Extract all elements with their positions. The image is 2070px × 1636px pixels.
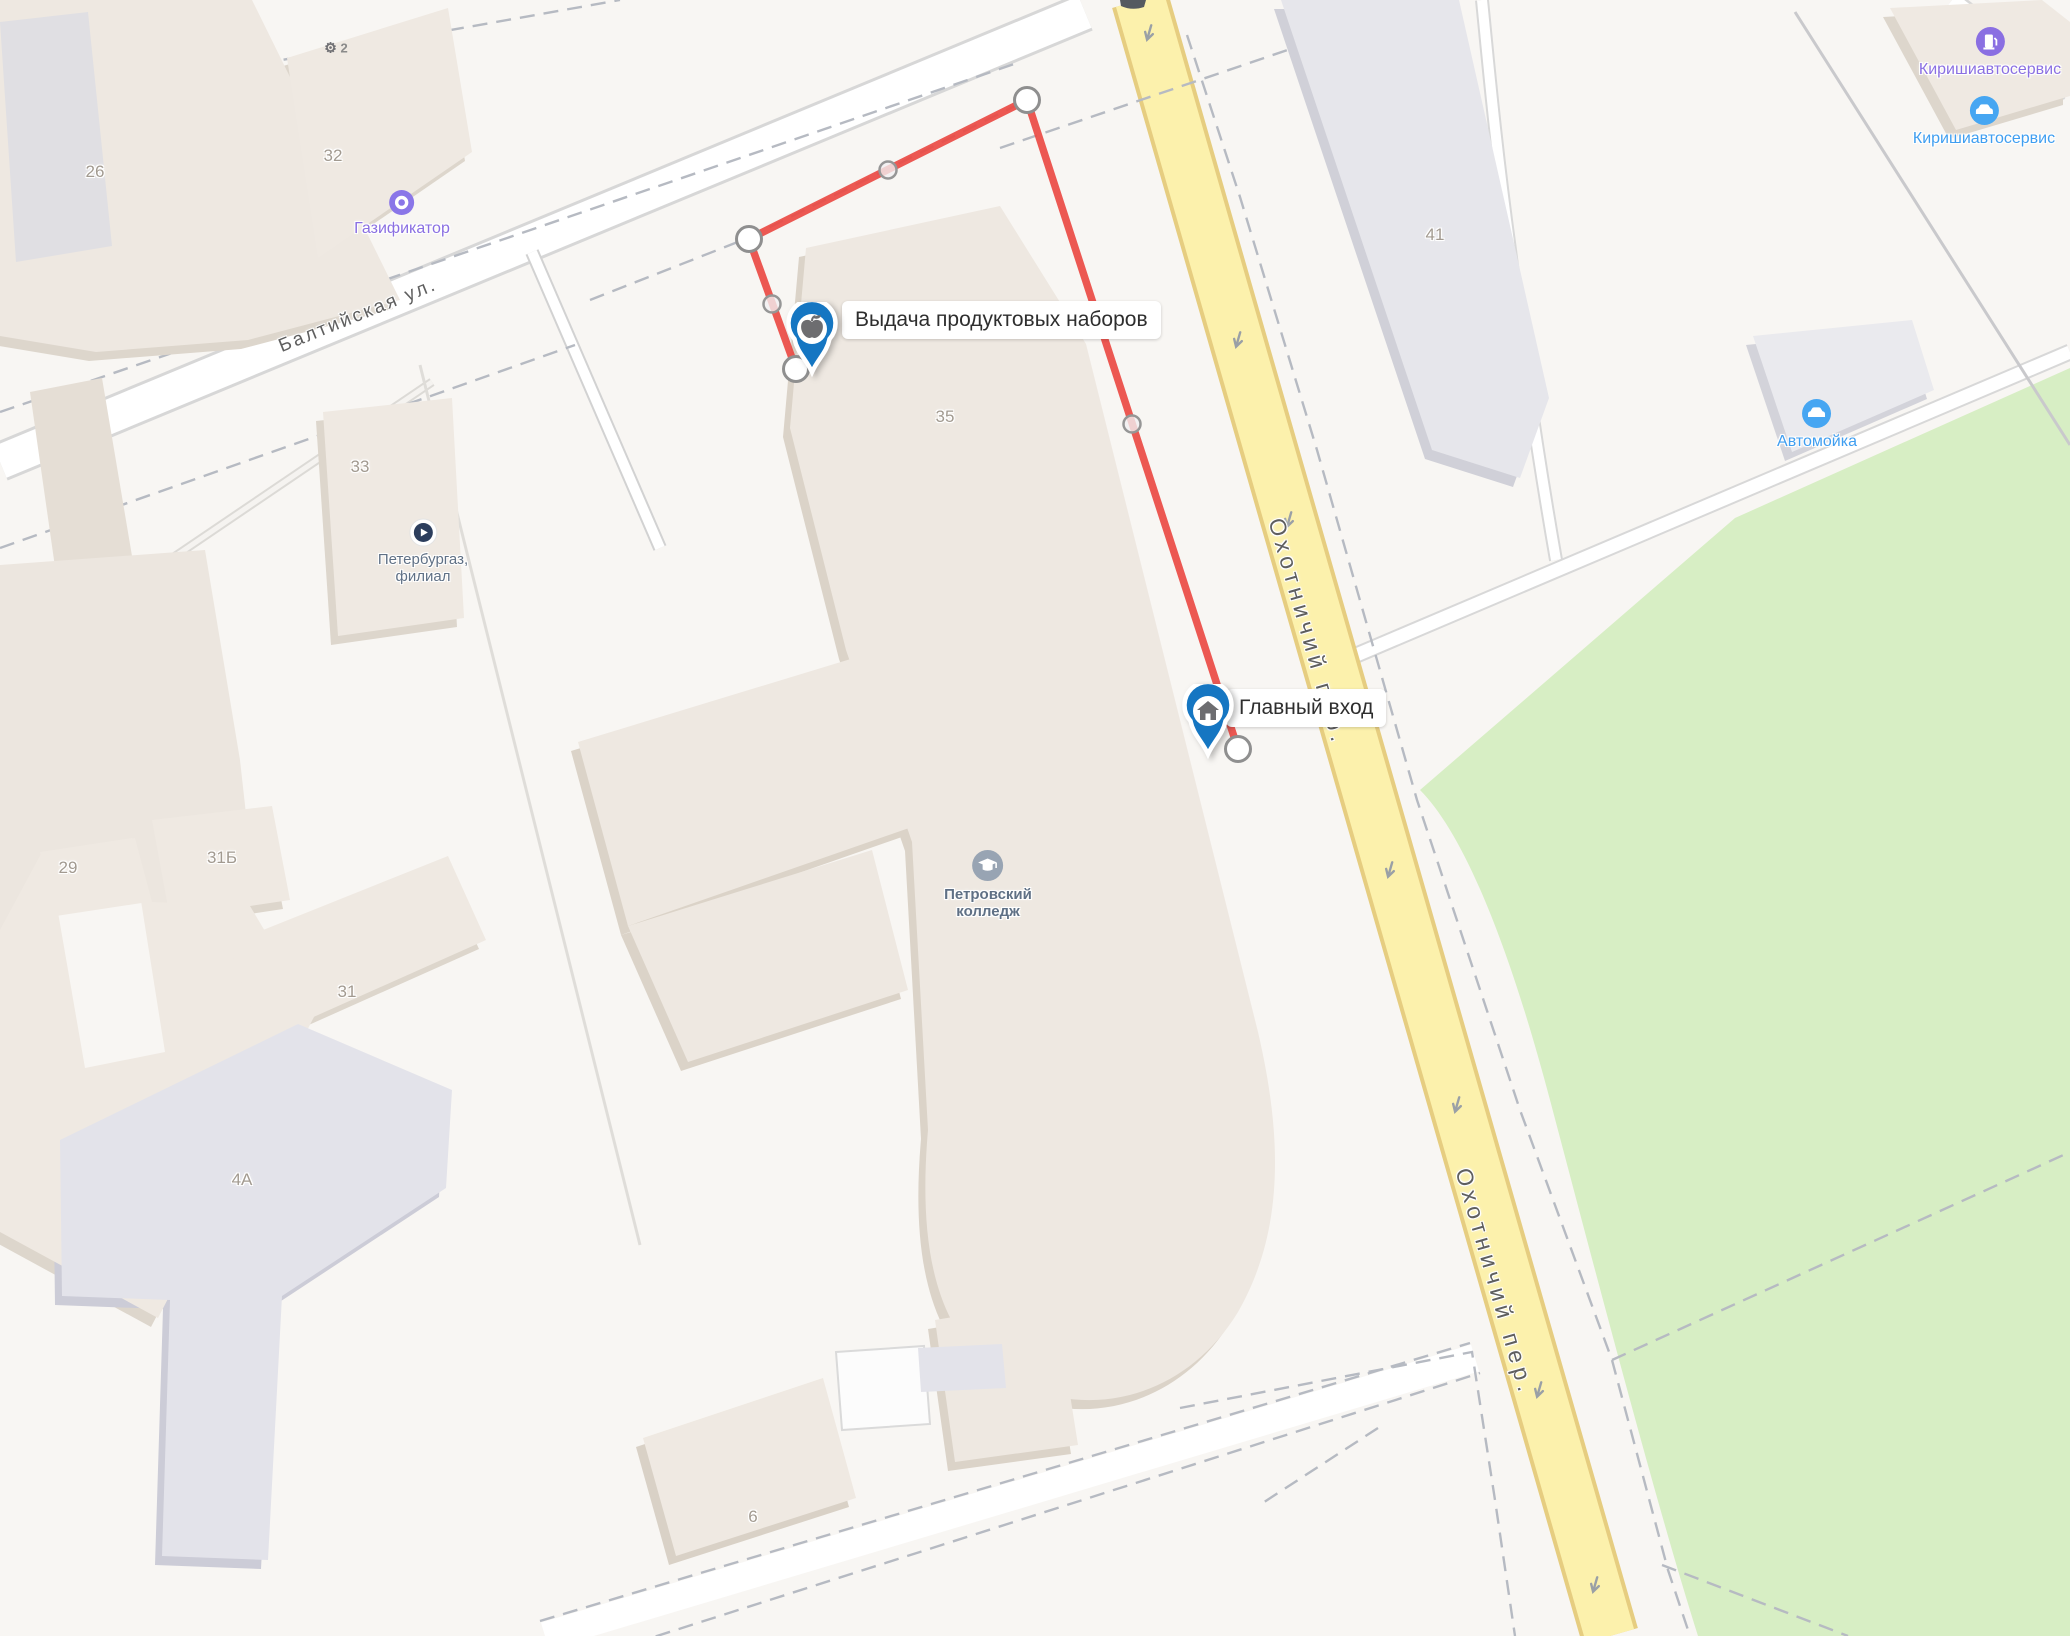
poi-label: Киришиавтосервис (1913, 129, 2055, 148)
route-midpoint-handle[interactable] (880, 162, 897, 179)
building-number-31: 31 (338, 982, 357, 1002)
gas-ring-icon (388, 189, 415, 216)
building-number-41: 41 (1426, 225, 1445, 245)
building-number-31b: 31Б (207, 848, 237, 868)
poi-kirishiavtoservis-fuel[interactable]: Киришиавтосервис (1919, 26, 2061, 79)
route-midpoint-handle[interactable] (764, 296, 781, 313)
placemark-label-food-distribution[interactable]: Выдача продуктовых наборов (842, 301, 1161, 339)
poi-label: филиал (378, 567, 468, 586)
graduation-cap-icon (972, 849, 1005, 882)
map-canvas[interactable]: Балтийская ул. Охотничий пер. Охотничий … (0, 0, 2070, 1636)
building-number-33: 33 (351, 457, 370, 477)
car-icon (1968, 95, 1999, 126)
fuel-pump-icon (1974, 26, 2005, 57)
placemark-label-main-entrance[interactable]: Главный вход (1226, 689, 1386, 727)
route-vertex-handle[interactable] (1015, 88, 1040, 113)
poi-peterburggaz[interactable]: Петербургаз, филиал (378, 518, 468, 586)
gear-icon: ⚙ (324, 40, 337, 56)
poi-entrance-label: 2 (340, 41, 347, 56)
poi-label: Автомойка (1777, 432, 1857, 451)
building-33 (323, 398, 464, 636)
poi-kirishiavtoservis-car[interactable]: Киришиавтосервис (1913, 95, 2055, 148)
building-number-26: 26 (86, 162, 105, 182)
route-vertex-handle[interactable] (737, 227, 762, 252)
car-icon (1801, 398, 1832, 429)
poi-label: Киришиавтосервис (1919, 60, 2061, 79)
company-logo-icon (409, 518, 438, 547)
placemark-main-entrance[interactable] (1179, 684, 1237, 765)
map-tiles (0, 0, 2070, 1636)
poi-gazifikator[interactable]: Газификатор (354, 189, 450, 238)
poi-avtomoyka[interactable]: Автомойка (1777, 398, 1857, 451)
building-number-4a: 4А (232, 1170, 253, 1190)
building-6 (643, 1378, 856, 1556)
poi-petrovskiy-college[interactable]: Петровский колледж (944, 849, 1032, 921)
building-number-29: 29 (59, 858, 78, 878)
placemark-food-distribution[interactable] (783, 302, 841, 383)
poi-entrance-2[interactable]: ⚙ 2 (324, 40, 347, 57)
building-number-32: 32 (324, 146, 343, 166)
route-midpoint-handle[interactable] (1124, 416, 1141, 433)
building-number-6: 6 (748, 1507, 757, 1527)
poi-label: Газификатор (354, 219, 450, 238)
poi-label: колледж (944, 902, 1032, 921)
building-number-35: 35 (936, 407, 955, 427)
park-area (1420, 368, 2070, 1636)
